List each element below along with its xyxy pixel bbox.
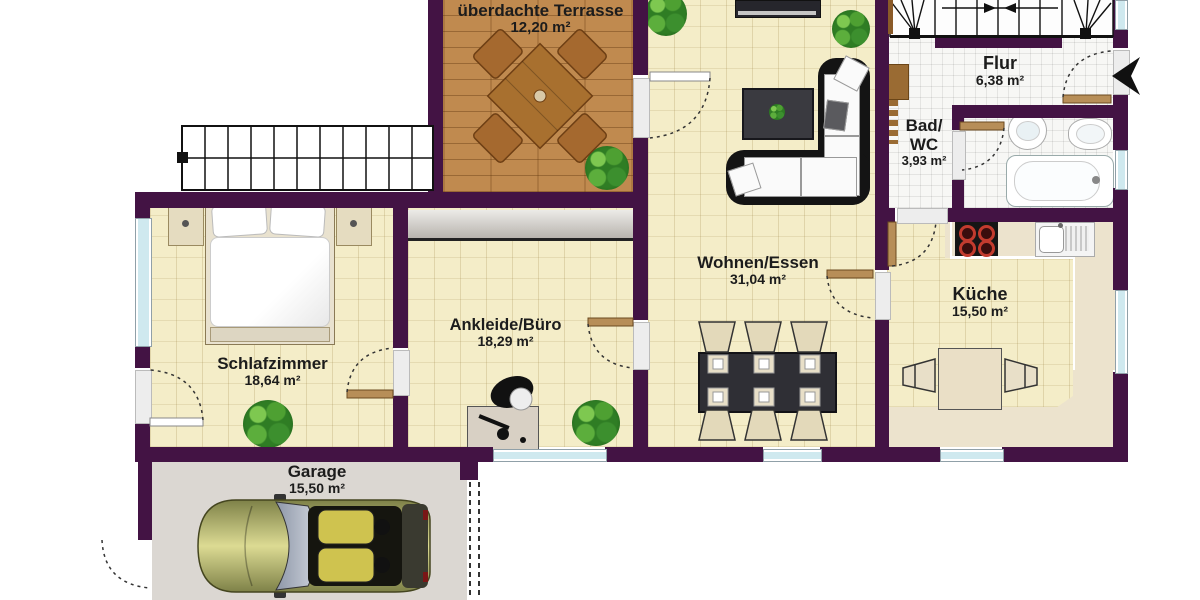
window xyxy=(940,449,1004,462)
room-label-kueche: Küche 15,50 m² xyxy=(925,284,1035,320)
room-area: 12,20 m² xyxy=(443,20,638,37)
door-threshold xyxy=(393,350,410,396)
kitchen-counter-right xyxy=(1073,256,1115,370)
bed-foot-bench xyxy=(210,327,330,342)
wall xyxy=(1002,447,1125,462)
wall xyxy=(875,0,889,270)
wall xyxy=(393,208,408,348)
wall xyxy=(820,447,940,462)
wall xyxy=(1113,372,1128,462)
door-threshold xyxy=(875,272,891,320)
room-label-wohnen: Wohnen/Essen 31,04 m² xyxy=(688,253,828,288)
plant xyxy=(243,400,293,448)
wall xyxy=(935,37,1062,48)
exterior-stairs xyxy=(177,126,433,190)
nightstand-right xyxy=(336,204,372,246)
garage-door xyxy=(470,482,479,598)
bed-duvet xyxy=(210,237,330,327)
wall xyxy=(633,138,648,320)
wall xyxy=(875,320,889,447)
wardrobe xyxy=(408,210,633,241)
room-name: Küche xyxy=(925,284,1035,304)
door-threshold xyxy=(633,322,650,370)
door-threshold xyxy=(897,208,948,224)
window xyxy=(1115,0,1128,30)
room-name: überdachte Terrasse xyxy=(443,1,638,20)
tv-board xyxy=(735,0,821,18)
wall xyxy=(138,462,152,540)
kitchen-table xyxy=(938,348,1002,410)
door-threshold xyxy=(1113,50,1130,95)
kitchen-floor2 xyxy=(887,222,945,258)
bed xyxy=(205,198,335,345)
window xyxy=(763,449,822,462)
wall xyxy=(633,370,648,447)
stove xyxy=(955,222,998,256)
wall xyxy=(952,105,1113,118)
room-name: Bad/ xyxy=(893,116,955,135)
window xyxy=(493,449,607,462)
room-area: 15,50 m² xyxy=(252,481,382,497)
wall xyxy=(135,208,150,218)
room-label-flur: Flur 6,38 m² xyxy=(950,53,1050,89)
sofa-pillow-dark xyxy=(823,100,849,132)
wall xyxy=(135,192,648,208)
window xyxy=(135,218,152,347)
window xyxy=(1115,150,1128,190)
nightstand-left xyxy=(168,204,204,246)
room-area: 31,04 m² xyxy=(688,272,828,288)
room-name: Wohnen/Essen xyxy=(688,253,828,272)
desk xyxy=(467,406,539,452)
wall xyxy=(135,447,493,462)
wall xyxy=(887,208,895,222)
wall xyxy=(1113,188,1128,290)
plant xyxy=(832,10,870,48)
room-label-schlafzimmer: Schlafzimmer 18,64 m² xyxy=(200,354,345,389)
room-area: 18,64 m² xyxy=(200,373,345,389)
plant-small xyxy=(769,104,785,120)
room-name: Ankleide/Büro xyxy=(438,316,573,334)
wall xyxy=(605,447,763,462)
toilet xyxy=(1068,118,1112,150)
wall xyxy=(948,208,1113,222)
wall xyxy=(1113,95,1128,150)
room-area: 6,38 m² xyxy=(950,73,1050,89)
floor-plan: überdachte Terrasse 12,20 m² Flur 6,38 m… xyxy=(0,0,1200,600)
dining-table xyxy=(698,352,837,413)
sofa-cushion xyxy=(801,157,857,197)
room-area: 3,93 m² xyxy=(893,154,955,169)
window xyxy=(1115,290,1128,374)
room-name: WC xyxy=(893,135,955,154)
room-label-ankleide: Ankleide/Büro 18,29 m² xyxy=(438,316,573,350)
room-area: 18,29 m² xyxy=(438,334,573,350)
door-threshold xyxy=(633,78,650,138)
room-label-garage: Garage 15,50 m² xyxy=(252,462,382,497)
plant xyxy=(572,400,620,446)
wall xyxy=(135,345,150,368)
room-name: Flur xyxy=(950,53,1050,73)
room-label-bad: Bad/ WC 3,93 m² xyxy=(893,116,955,169)
room-name: Garage xyxy=(252,462,382,481)
wall xyxy=(460,447,478,480)
wall xyxy=(393,396,408,447)
plant xyxy=(585,146,629,190)
kitchen-sink xyxy=(1035,222,1095,257)
wall xyxy=(428,0,443,192)
door-threshold xyxy=(135,370,152,424)
bathtub xyxy=(1006,155,1114,207)
room-name: Schlafzimmer xyxy=(200,354,345,373)
room-label-terrasse: überdachte Terrasse 12,20 m² xyxy=(443,1,638,37)
room-area: 15,50 m² xyxy=(925,304,1035,320)
